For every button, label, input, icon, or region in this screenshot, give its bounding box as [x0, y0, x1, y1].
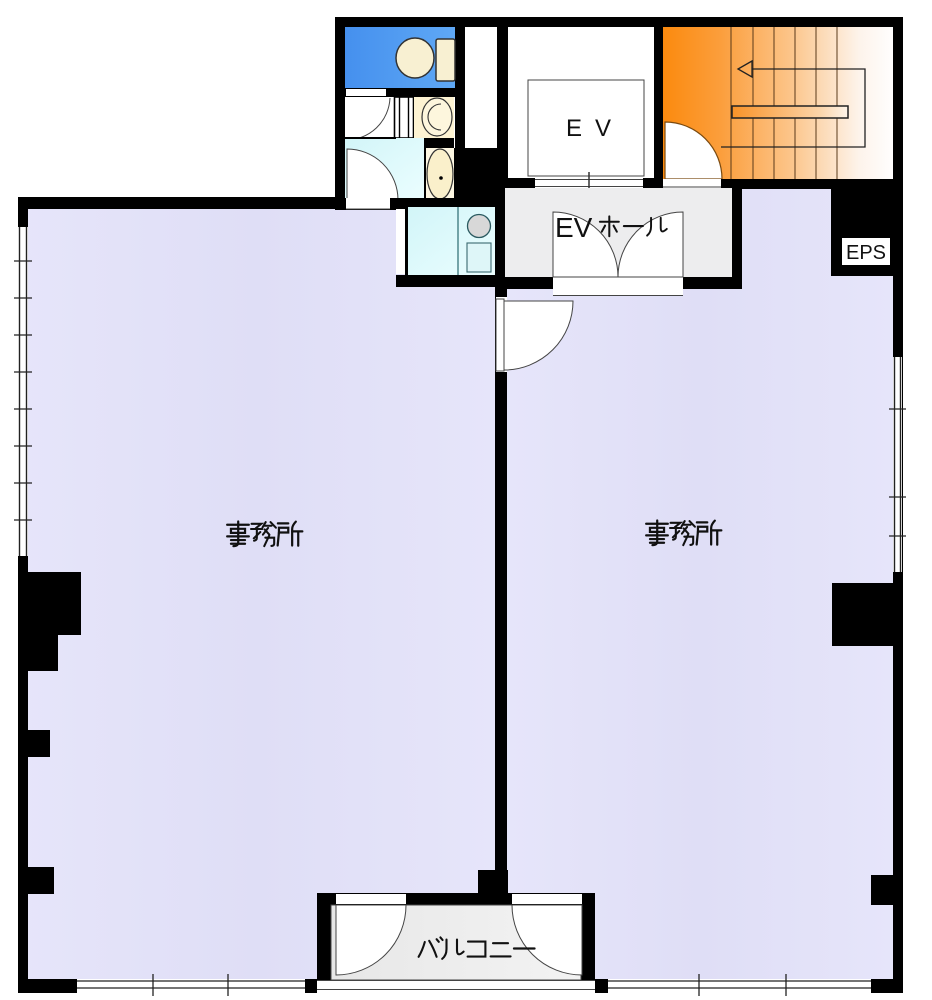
svg-text:EV: EV: [566, 115, 624, 142]
svg-text:EPS: EPS: [846, 242, 886, 264]
svg-text:EV: EV: [555, 212, 593, 243]
